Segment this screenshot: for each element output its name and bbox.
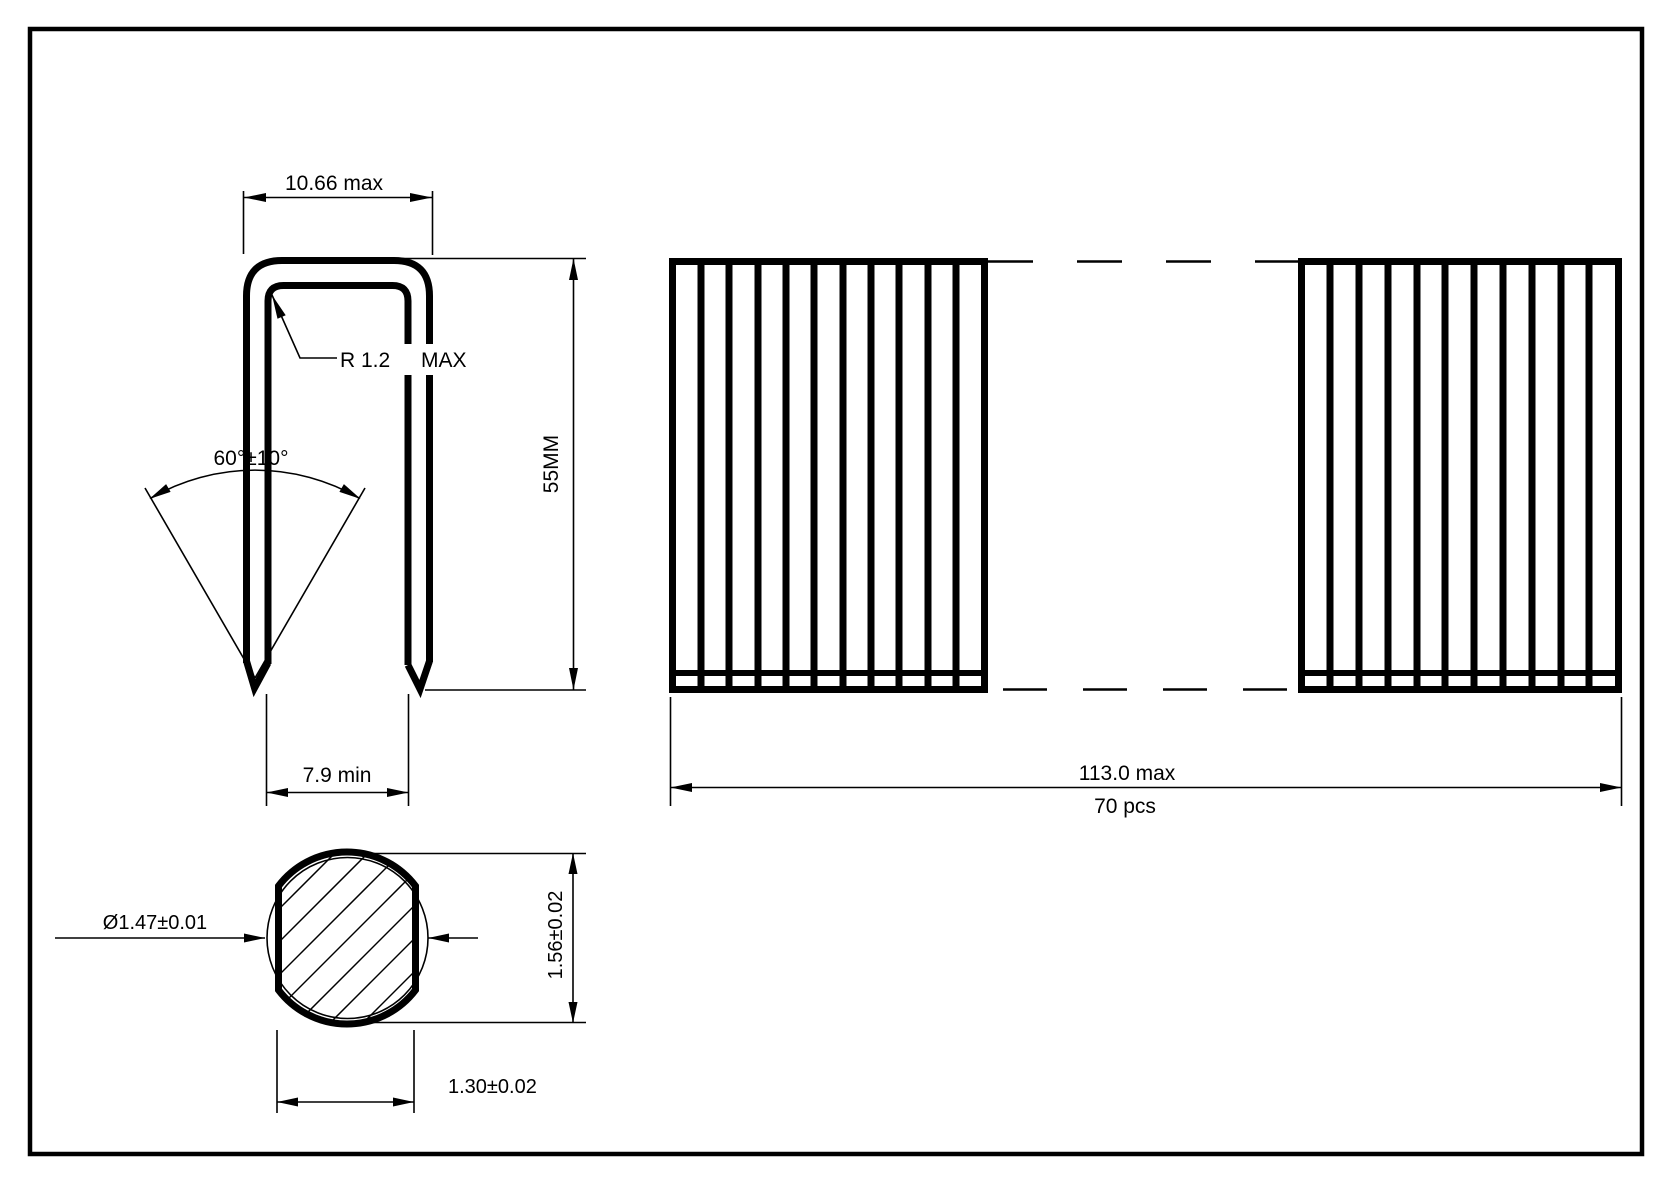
strip-count-label: 70 pcs xyxy=(1094,795,1156,818)
corner-radius-leader: R 1.2 MAX xyxy=(272,295,473,375)
point-angle-label: 60°±10° xyxy=(213,447,288,470)
inside-width-label: 7.9 min xyxy=(303,764,372,787)
staple-right-point xyxy=(408,661,430,689)
strip-right-section xyxy=(1298,262,1622,690)
wire-width-label: 1.30±0.02 xyxy=(448,1076,537,1098)
crown-width-label: 10.66 max xyxy=(285,172,384,195)
wire-cross-section-view: Ø1.47±0.01 1.56±0.02 1.30±0.02 xyxy=(55,830,589,1113)
leader-arrow xyxy=(272,295,286,319)
wire-reference-circle xyxy=(267,858,428,1019)
leg-length-label: 55MM xyxy=(540,435,563,493)
drawing-page: 60°±10° 10.66 max R 1.2 MAX xyxy=(0,0,1674,1187)
angle-arrow-right xyxy=(339,484,360,499)
wire-height-label: 1.56±0.02 xyxy=(545,891,567,980)
crown-width-dimension: 10.66 max xyxy=(244,172,433,255)
corner-radius-max-label: MAX xyxy=(421,349,467,372)
wire-diameter-label: Ø1.47±0.01 xyxy=(103,912,207,934)
strip-left-section xyxy=(669,262,988,690)
wire-profile-outline xyxy=(279,852,416,1024)
technical-drawing: 60°±10° 10.66 max R 1.2 MAX xyxy=(0,0,1674,1187)
staple-inner-outline xyxy=(268,286,408,666)
angle-arrow-left xyxy=(149,484,170,499)
staple-strip-view: 113.0 max 70 pcs xyxy=(669,262,1622,819)
wire-width-dimension: 1.30±0.02 xyxy=(277,1030,537,1113)
inside-width-dimension: 7.9 min xyxy=(267,694,409,806)
staple-profile-view: 60°±10° 10.66 max R 1.2 MAX xyxy=(145,172,586,806)
point-angle-dimension: 60°±10° xyxy=(145,447,365,678)
leg-length-dimension: 55MM xyxy=(396,259,586,691)
strip-length-label: 113.0 max xyxy=(1079,762,1176,785)
strip-length-dimension: 113.0 max 70 pcs xyxy=(671,697,1622,818)
corner-radius-label: R 1.2 xyxy=(340,349,390,372)
